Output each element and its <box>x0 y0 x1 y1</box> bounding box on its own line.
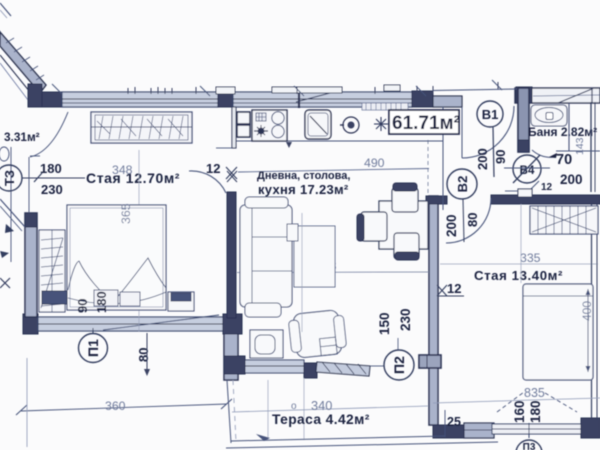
svg-text:200: 200 <box>475 148 490 170</box>
svg-text:о: о <box>291 401 297 412</box>
svg-text:200: 200 <box>560 172 583 187</box>
svg-text:61.71м²: 61.71м² <box>392 113 460 134</box>
svg-text:3.31м²: 3.31м² <box>4 130 40 144</box>
svg-text:90: 90 <box>493 150 508 164</box>
svg-text:В1: В1 <box>482 107 499 122</box>
svg-text:150: 150 <box>377 312 392 335</box>
svg-text:Тераса 4.42м²: Тераса 4.42м² <box>272 412 370 427</box>
svg-text:490: 490 <box>364 156 385 170</box>
svg-text:340: 340 <box>311 398 332 413</box>
svg-text:180: 180 <box>40 161 62 176</box>
svg-text:80: 80 <box>465 213 480 227</box>
svg-text:12: 12 <box>541 182 553 193</box>
svg-text:70: 70 <box>556 152 572 168</box>
svg-text:335: 335 <box>520 251 541 265</box>
svg-text:200: 200 <box>444 214 459 237</box>
svg-text:12: 12 <box>447 281 461 296</box>
svg-text:Стая 13.40м²: Стая 13.40м² <box>474 268 563 283</box>
svg-text:230: 230 <box>398 308 413 331</box>
svg-text:кухня 17.23м²: кухня 17.23м² <box>258 182 349 197</box>
svg-text:360: 360 <box>105 399 126 413</box>
svg-text:12: 12 <box>206 161 220 176</box>
svg-text:835: 835 <box>524 386 545 400</box>
svg-text:ТЗ: ТЗ <box>2 170 17 186</box>
svg-text:143: 143 <box>574 137 586 155</box>
svg-text:25: 25 <box>447 415 461 429</box>
svg-text:80: 80 <box>136 348 151 362</box>
svg-text:Дневна, столова,: Дневна, столова, <box>257 170 350 182</box>
svg-text:В4: В4 <box>520 165 535 177</box>
svg-text:230: 230 <box>41 182 63 197</box>
svg-text:П3: П3 <box>523 442 536 450</box>
svg-text:Баня 2.82м²: Баня 2.82м² <box>528 125 597 139</box>
svg-text:П2: П2 <box>391 356 407 374</box>
svg-text:160: 160 <box>512 400 527 423</box>
svg-text:90: 90 <box>75 299 90 313</box>
svg-text:В2: В2 <box>455 176 470 193</box>
svg-text:365: 365 <box>119 203 133 224</box>
svg-text:Стая 12.70м²: Стая 12.70м² <box>86 170 180 186</box>
svg-text:348: 348 <box>112 163 133 177</box>
svg-text:180: 180 <box>528 400 543 423</box>
svg-text:180: 180 <box>94 291 109 313</box>
svg-text:400: 400 <box>580 301 594 321</box>
svg-text:П1: П1 <box>85 339 101 357</box>
